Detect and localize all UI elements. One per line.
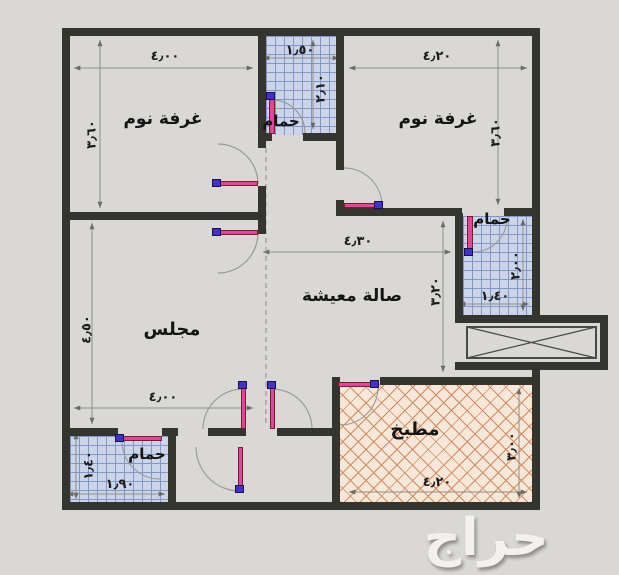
dim-kitchen-width: ٤٫٢٠ [407,476,467,489]
wall-segment [62,428,118,436]
dim-bath-top-height: ٢٫١٠ [315,60,328,118]
room-label-majlis: مجلس [128,320,216,340]
watermark-logo: حراج [360,512,612,564]
wall-segment [336,36,344,170]
room-label-bath-right: حمام [466,211,518,228]
door-knob [212,179,221,187]
wall-segment [344,208,462,216]
room-label-living: صالة معيشة [283,287,421,306]
wall-segment [455,362,540,370]
dim-bedroom-2-height: ٣٫٦٠ [490,103,503,163]
wall-segment [336,200,344,216]
wall-segment [258,186,266,234]
wall-segment [62,212,266,220]
door-arc [218,144,258,184]
wall-segment [258,36,266,148]
dim-majlis-width: ٤٫٠٠ [133,391,193,404]
door-arc [196,447,240,491]
wall-segment [532,362,608,370]
wall-segment [208,428,246,436]
dim-bath-right-height: ٢٫٠٠ [510,237,523,295]
door-leaf [120,436,162,441]
room-label-kitchen: مطبخ [372,420,458,440]
door-knob [238,381,247,389]
wall-segment [277,428,337,436]
door-arc [218,233,258,273]
dim-bath-bottom-left-width: ١٫٩٠ [92,478,148,491]
wall-segment [258,133,272,141]
shaft-box [467,327,596,358]
door-knob [464,248,473,256]
dim-living-height: ٣٫٢٠ [430,262,443,322]
wall-segment [455,315,608,323]
dim-bedroom-1-height: ٣٫٦٠ [86,105,99,165]
room-label-bedroom-2: غرفة نوم [375,110,501,129]
wall-segment [455,213,463,323]
door-knob [266,92,275,100]
floor-plan: غرفة نوم غرفة نوم حمام حمام حمام مجلس صا… [0,0,619,575]
wall-segment [380,377,540,385]
wall-segment [332,377,340,510]
door-leaf [270,387,275,429]
room-label-bath-top: حمام [256,113,306,130]
dim-bedroom-2-width: ٤٫٢٠ [407,50,467,63]
door-leaf [218,230,258,235]
door-knob [212,228,221,236]
wall-segment [62,28,70,510]
door-knob [267,381,276,389]
wall-segment [532,28,540,323]
dim-bath-top-width: ١٫٥٠ [272,44,328,57]
door-knob [370,380,379,388]
door-knob [235,485,244,493]
dim-kitchen-height: ٣٫٠٠ [506,417,519,477]
room-label-bedroom-1: غرفة نوم [100,110,226,129]
door-knob [374,201,383,209]
dim-majlis-height: ٤٫٥٠ [81,299,94,361]
door-knob [115,434,124,442]
room-label-bath-bottom-left: حمام [121,446,173,463]
dim-bedroom-1-width: ٤٫٠٠ [135,50,195,63]
dim-bath-bottom-left-height: ١٫٤٠ [83,437,96,495]
door-leaf [241,387,246,429]
door-leaf [218,181,258,186]
wall-segment [168,428,176,510]
door-arc [272,389,312,429]
wall-segment [62,28,540,36]
dim-living-width: ٤٫٣٠ [328,235,388,248]
door-arc [203,389,243,429]
